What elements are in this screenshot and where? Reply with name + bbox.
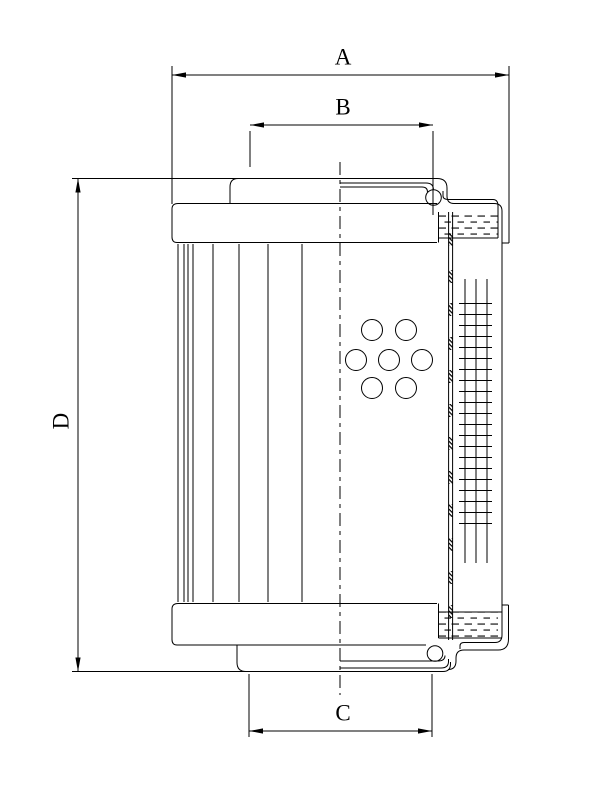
rod-hatch-band — [449, 370, 453, 383]
rod-hatch-band — [449, 303, 453, 316]
support-mesh — [459, 279, 492, 563]
rod-hatch-band — [449, 538, 453, 551]
seal-gasket-top — [439, 212, 499, 243]
rod-hatch-band — [449, 337, 453, 350]
sheet-background — [0, 0, 612, 792]
rod-hatch-band — [449, 504, 453, 517]
rod-hatch-band — [449, 233, 453, 246]
mesh-wire-rows — [459, 303, 492, 529]
dimension-c-label: C — [335, 701, 350, 726]
dimension-d-label: D — [49, 413, 74, 430]
seal-bottom-hatch — [439, 612, 499, 638]
rod-hatch-band — [449, 437, 453, 450]
filter-element-technical-drawing: A B C D — [0, 0, 612, 792]
rod-hatch-band — [449, 471, 453, 484]
dimension-b-label: B — [335, 95, 350, 120]
rod-hatch-band — [449, 571, 453, 584]
dimension-a-label: A — [335, 45, 352, 70]
drawing-sheet: A B C D — [0, 0, 612, 792]
rod-hatch-band — [449, 270, 453, 283]
seal-top-hatch — [439, 212, 499, 238]
rod-hatch-band — [449, 404, 453, 417]
